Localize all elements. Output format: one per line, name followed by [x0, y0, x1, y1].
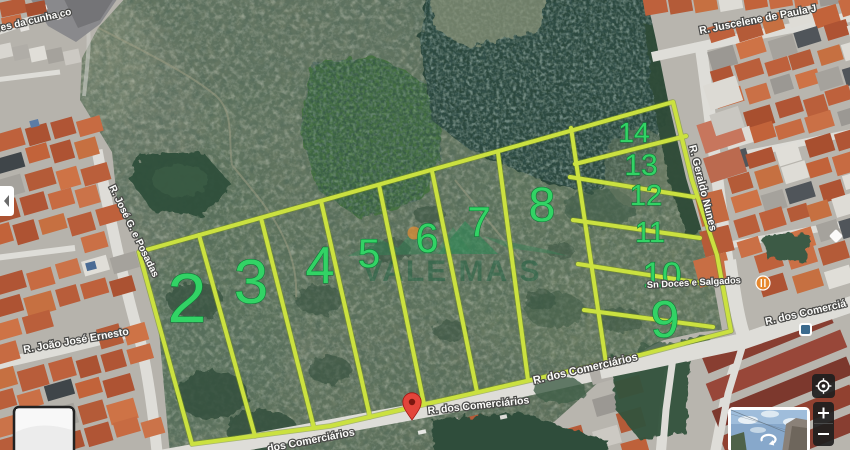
svg-text:4: 4	[306, 237, 335, 295]
svg-text:12: 12	[630, 180, 662, 212]
svg-text:11: 11	[635, 217, 665, 249]
svg-text:5: 5	[358, 232, 380, 276]
svg-text:7: 7	[467, 198, 490, 245]
svg-text:3: 3	[234, 248, 268, 317]
svg-text:6: 6	[416, 215, 439, 261]
svg-text:13: 13	[624, 149, 657, 182]
svg-text:9: 9	[651, 291, 680, 349]
svg-text:8: 8	[529, 179, 556, 232]
svg-text:2: 2	[168, 259, 207, 337]
svg-text:14: 14	[618, 117, 649, 148]
